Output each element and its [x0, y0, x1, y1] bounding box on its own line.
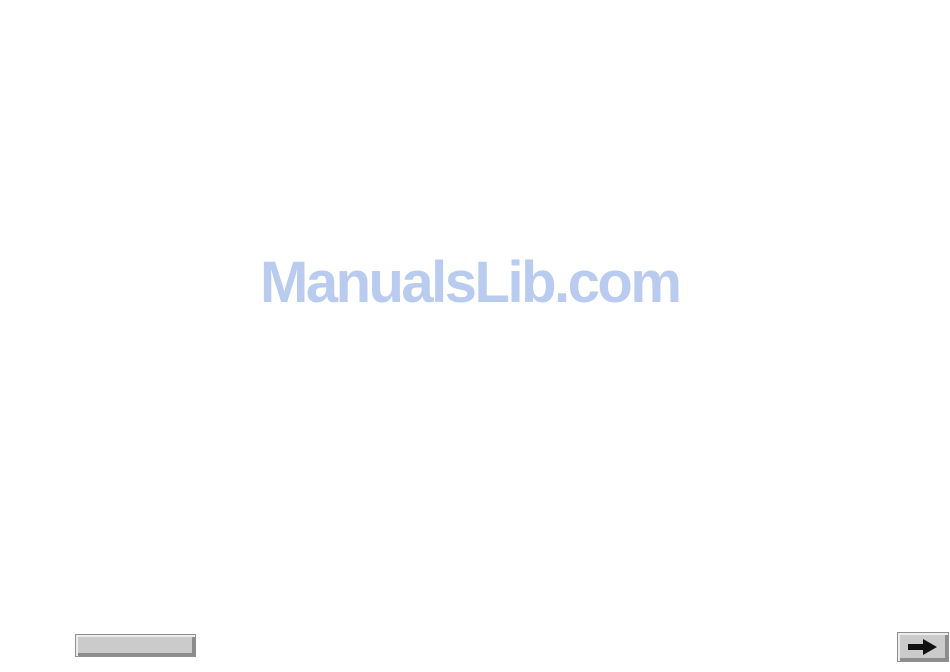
page: ManualsLib.com	[0, 0, 950, 672]
prev-page-button[interactable]	[75, 634, 196, 657]
schematic-diagram	[0, 0, 950, 672]
next-page-button[interactable]	[897, 632, 949, 662]
arrow-right-icon	[906, 637, 940, 657]
